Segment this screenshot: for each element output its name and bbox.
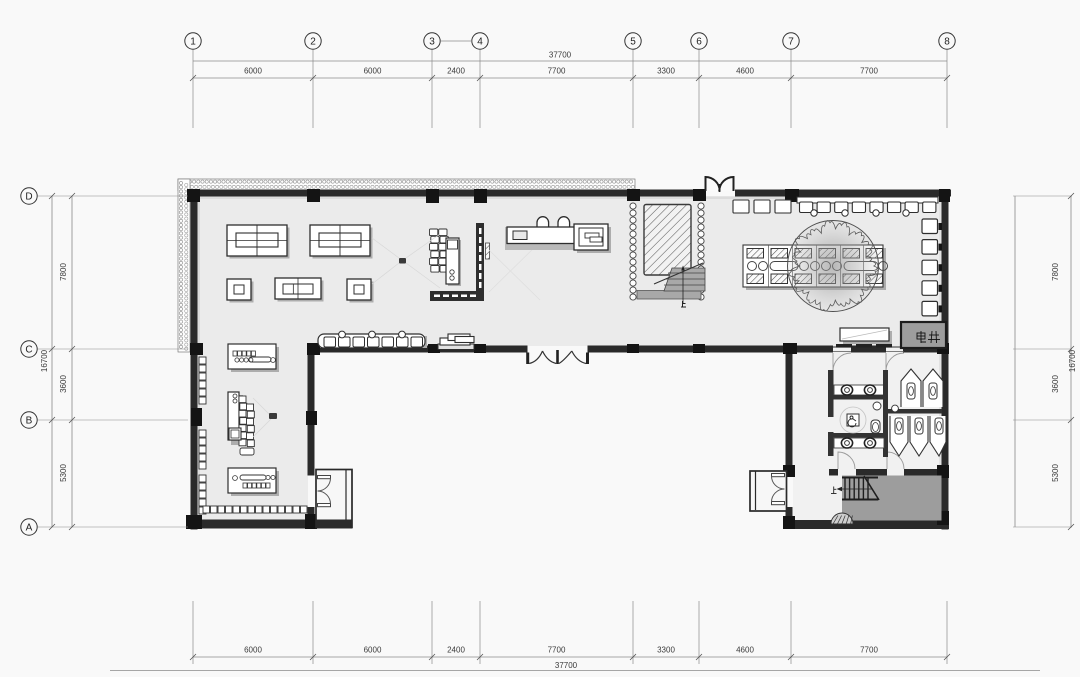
svg-text:7700: 7700 <box>548 646 566 655</box>
svg-text:3300: 3300 <box>657 646 675 655</box>
svg-text:6000: 6000 <box>244 67 262 76</box>
svg-text:3600: 3600 <box>1051 375 1060 393</box>
svg-text:3: 3 <box>429 37 435 48</box>
svg-text:6000: 6000 <box>244 646 262 655</box>
svg-text:2400: 2400 <box>447 646 465 655</box>
svg-text:3600: 3600 <box>59 375 68 393</box>
svg-text:6000: 6000 <box>364 646 382 655</box>
svg-text:C: C <box>25 345 32 356</box>
svg-text:B: B <box>26 416 33 427</box>
svg-text:2400: 2400 <box>447 67 465 76</box>
svg-text:6: 6 <box>696 37 702 48</box>
svg-text:37700: 37700 <box>549 51 572 60</box>
svg-text:16700: 16700 <box>1068 349 1077 372</box>
svg-text:D: D <box>25 192 32 203</box>
svg-text:16700: 16700 <box>40 349 49 372</box>
svg-text:5300: 5300 <box>59 464 68 482</box>
svg-text:4600: 4600 <box>736 646 754 655</box>
svg-text:3300: 3300 <box>657 67 675 76</box>
svg-text:7700: 7700 <box>860 646 878 655</box>
svg-text:7700: 7700 <box>860 67 878 76</box>
svg-text:A: A <box>26 523 33 534</box>
svg-text:6000: 6000 <box>364 67 382 76</box>
svg-text:7: 7 <box>788 37 794 48</box>
svg-text:7800: 7800 <box>59 263 68 281</box>
svg-text:2: 2 <box>310 37 316 48</box>
svg-text:37700: 37700 <box>555 661 578 670</box>
svg-text:5: 5 <box>630 37 636 48</box>
svg-text:1: 1 <box>190 37 196 48</box>
svg-text:5300: 5300 <box>1051 464 1060 482</box>
svg-text:7800: 7800 <box>1051 263 1060 281</box>
svg-text:4: 4 <box>477 37 483 48</box>
svg-text:7700: 7700 <box>548 67 566 76</box>
svg-text:8: 8 <box>944 37 950 48</box>
svg-text:4600: 4600 <box>736 67 754 76</box>
